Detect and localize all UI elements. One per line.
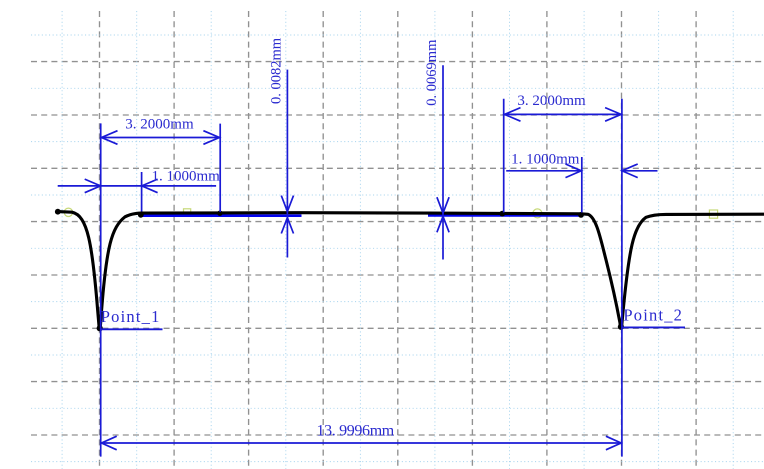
svg-text:0. 0069mm: 0. 0069mm bbox=[424, 39, 440, 106]
svg-text:3. 2000mm: 3. 2000mm bbox=[517, 93, 586, 109]
svg-text:0. 0082mm: 0. 0082mm bbox=[269, 37, 285, 104]
svg-text:1. 1000mm: 1. 1000mm bbox=[152, 168, 221, 184]
svg-text:1. 1000mm: 1. 1000mm bbox=[511, 152, 580, 168]
svg-text:Point_2: Point_2 bbox=[623, 306, 683, 325]
svg-text:13. 9996mm: 13. 9996mm bbox=[317, 422, 395, 439]
svg-text:Point_1: Point_1 bbox=[101, 307, 161, 326]
svg-text:3. 2000mm: 3. 2000mm bbox=[125, 117, 194, 133]
